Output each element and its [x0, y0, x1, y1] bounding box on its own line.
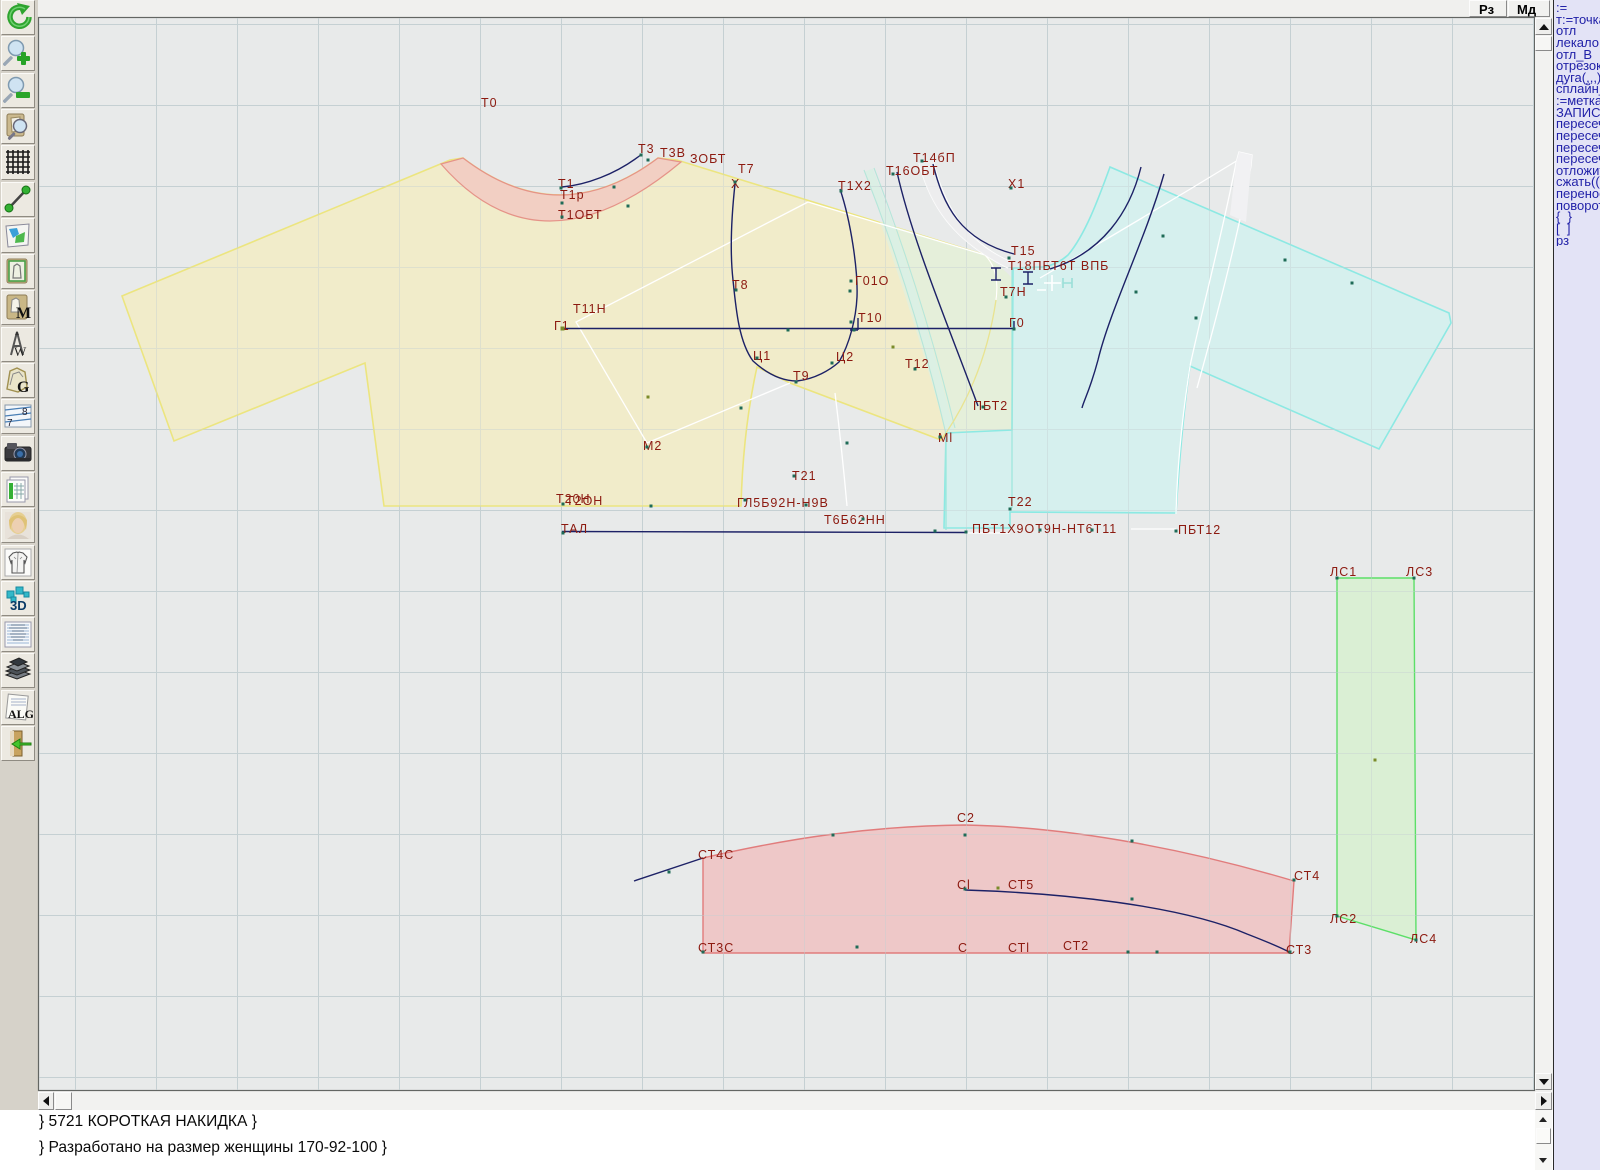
svg-text:С2: С2	[957, 811, 975, 825]
svg-text:Г1: Г1	[554, 319, 570, 333]
svg-text:Т2ОН: Т2ОН	[566, 494, 603, 508]
svg-text:Т8: Т8	[732, 278, 749, 292]
svg-text:Т16ОБТ: Т16ОБТ	[886, 164, 939, 178]
svg-text:ЛС4: ЛС4	[1410, 932, 1437, 946]
svg-text:С: С	[958, 941, 968, 955]
svg-text:ПБТ2: ПБТ2	[973, 399, 1008, 413]
svg-text:Т18ПБТ6Т ВПБ: Т18ПБТ6Т ВПБ	[1008, 259, 1109, 273]
svg-text:Г01О: Г01О	[855, 274, 889, 288]
svg-text:Т1р: Т1р	[560, 188, 585, 202]
svg-text:Т3В: Т3В	[660, 146, 686, 160]
svg-text:Г0: Г0	[1009, 316, 1025, 330]
svg-text:СТ5: СТ5	[1008, 878, 1034, 892]
svg-text:Ц1: Ц1	[753, 349, 771, 363]
svg-text:Т7Н: Т7Н	[1000, 285, 1027, 299]
svg-text:СТ3: СТ3	[1286, 943, 1312, 957]
svg-text:Т12: Т12	[905, 357, 930, 371]
svg-text:СТ4С: СТ4С	[698, 848, 734, 862]
svg-text:ЛС1: ЛС1	[1330, 565, 1357, 579]
svg-text:Т1Х2: Т1Х2	[838, 179, 872, 193]
svg-text:Т22: Т22	[1008, 495, 1033, 509]
svg-text:Т14бП: Т14бП	[913, 151, 956, 165]
svg-text:Т0: Т0	[481, 96, 498, 110]
svg-text:ПБТ12: ПБТ12	[1178, 523, 1221, 537]
svg-text:ГЛ5Б92Н-Н9В: ГЛ5Б92Н-Н9В	[737, 496, 829, 510]
svg-text:Т7: Т7	[738, 162, 755, 176]
svg-text:ТАЛ: ТАЛ	[561, 522, 588, 536]
svg-text:Т10: Т10	[858, 311, 883, 325]
svg-text:Т1ОБТ: Т1ОБТ	[558, 208, 603, 222]
svg-text:СТl: СТl	[1008, 941, 1030, 955]
svg-text:Х: Х	[731, 177, 740, 191]
svg-text:ПБТ1Х9ОТ9Н-НТ6Т11: ПБТ1Х9ОТ9Н-НТ6Т11	[972, 522, 1117, 536]
svg-text:Т15: Т15	[1011, 244, 1036, 258]
svg-text:Т21: Т21	[792, 469, 817, 483]
svg-text:Т11Н: Т11Н	[573, 302, 607, 316]
svg-text:СТ2: СТ2	[1063, 939, 1089, 953]
svg-text:СТ4: СТ4	[1294, 869, 1320, 883]
svg-text:ЛС2: ЛС2	[1330, 912, 1357, 926]
svg-text:ЗОБТ: ЗОБТ	[690, 152, 726, 166]
svg-text:Т6Б62НН: Т6Б62НН	[824, 513, 886, 527]
svg-text:Ц2: Ц2	[836, 350, 854, 364]
svg-text:ЛС3: ЛС3	[1406, 565, 1433, 579]
